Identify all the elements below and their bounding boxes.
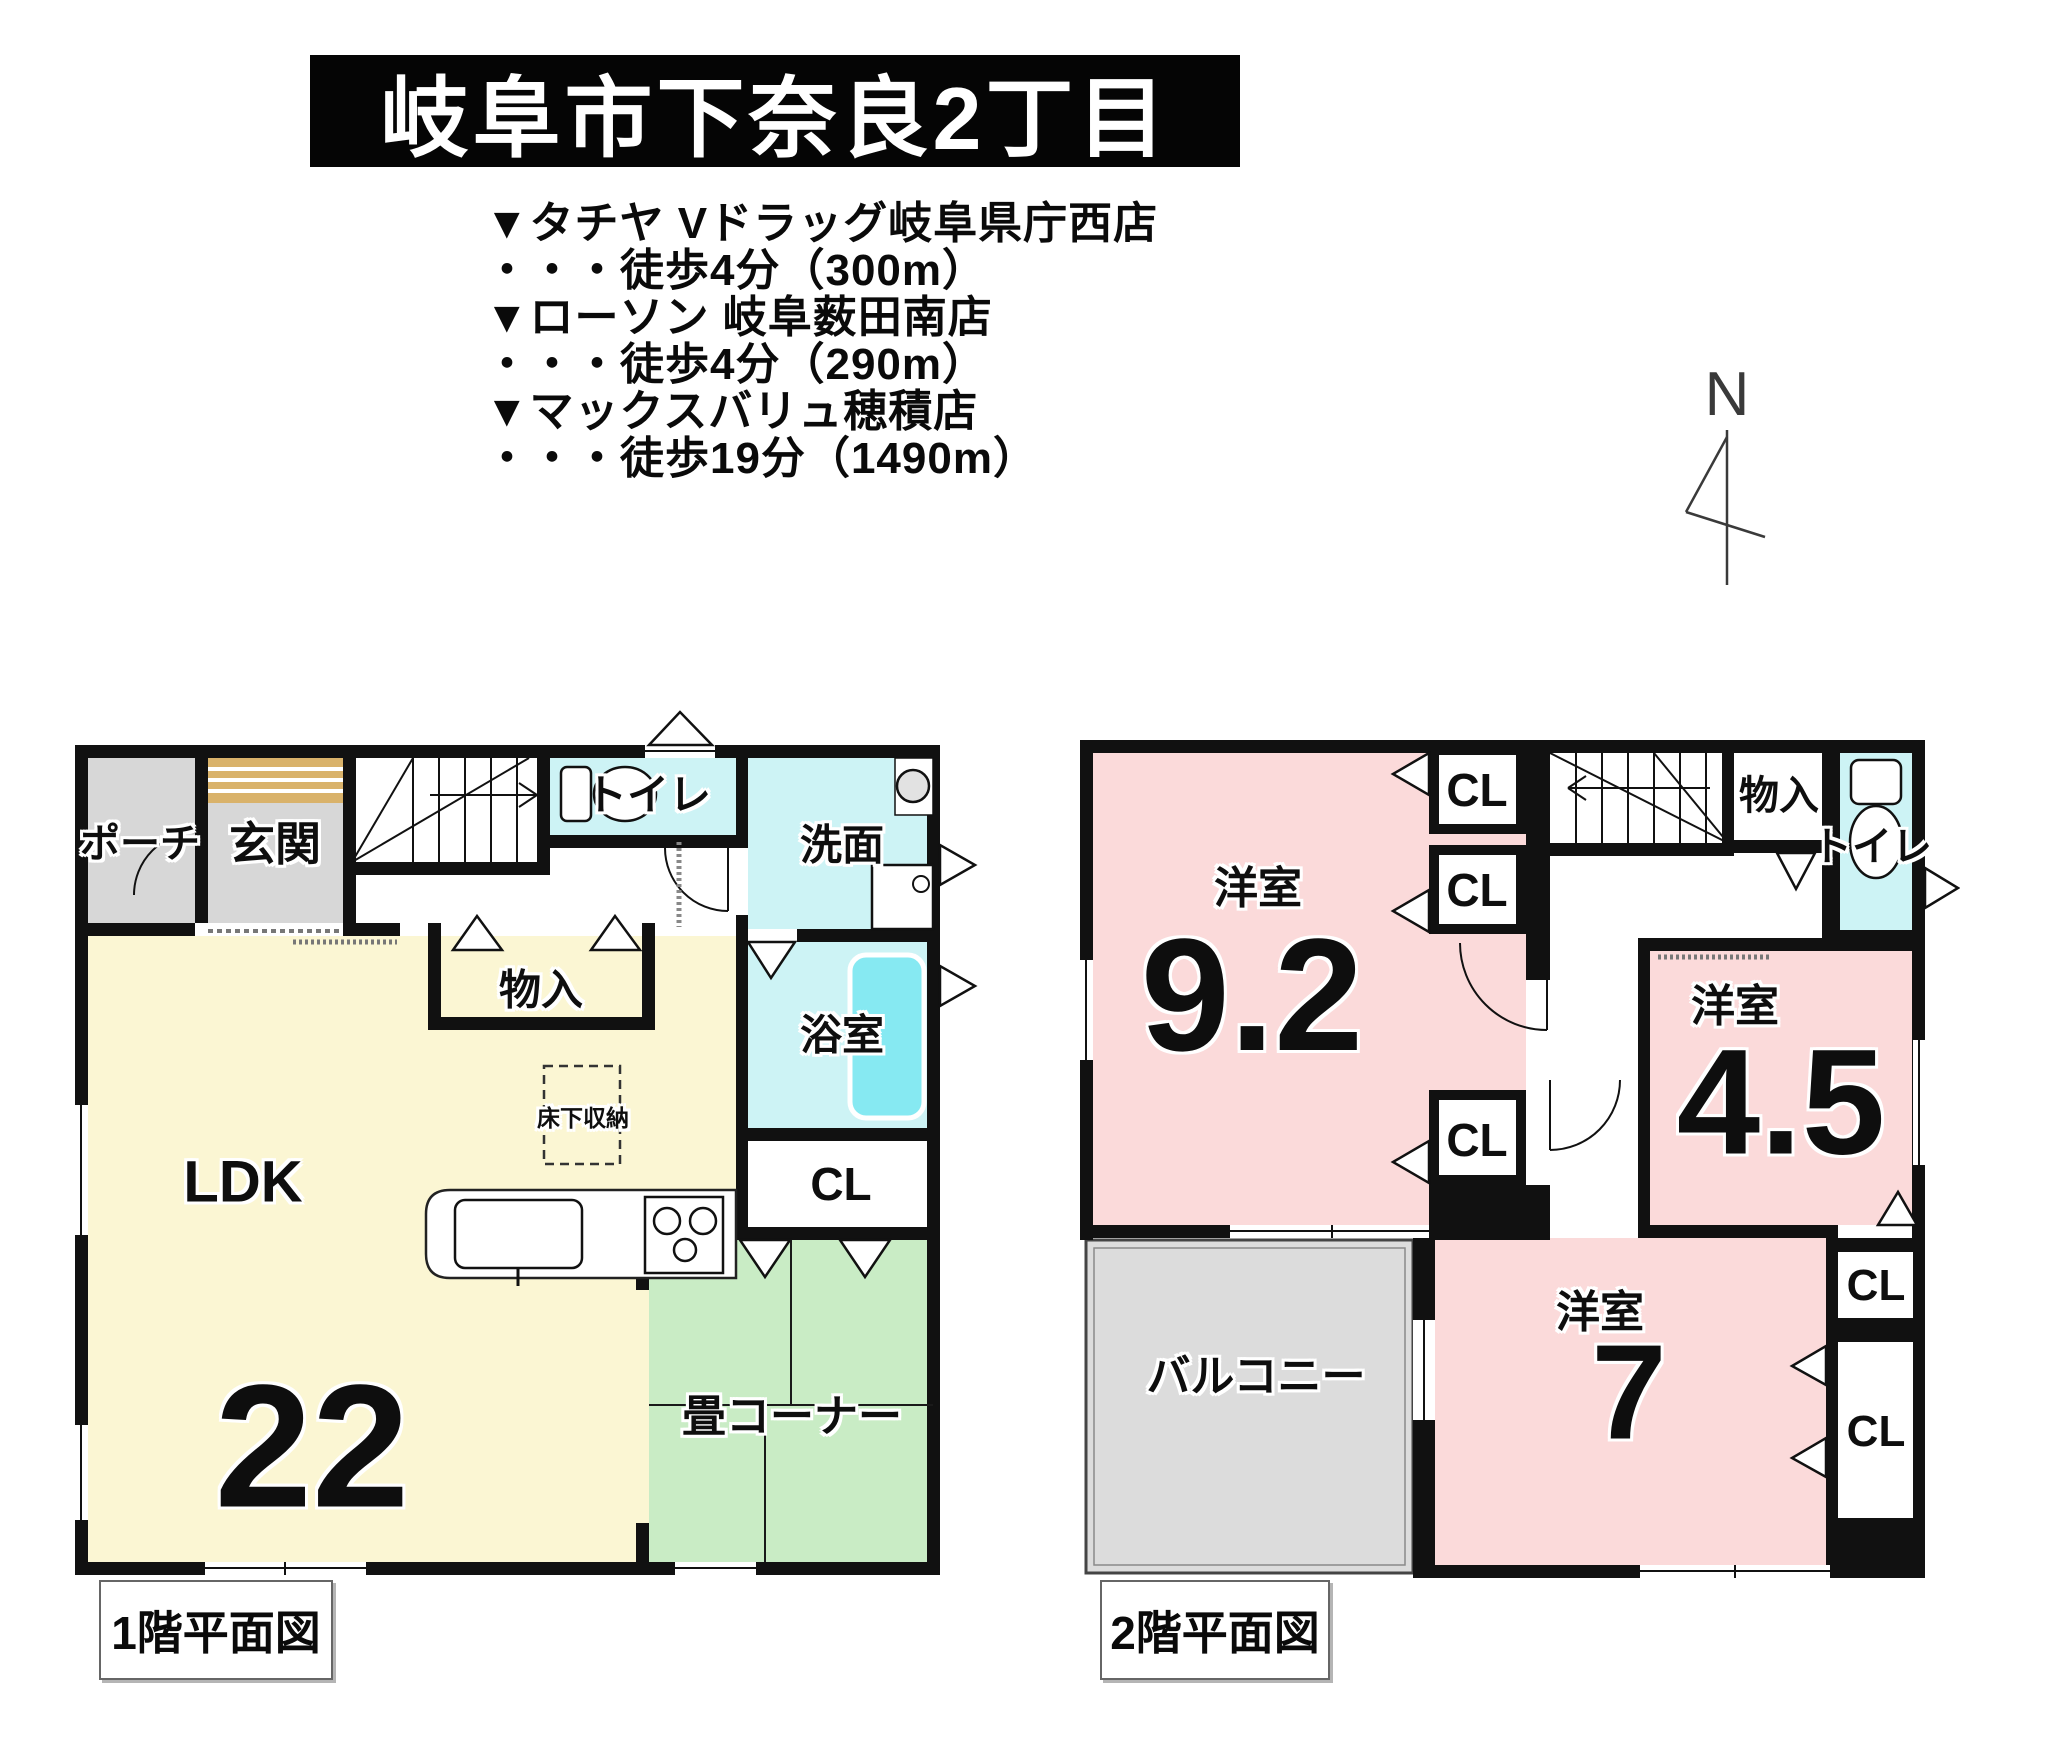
north-label: N [1705, 360, 1750, 429]
nearby-line: ▼ローソン 岐阜薮田南店 [485, 294, 1158, 341]
label-closet-1f: CL [810, 1157, 871, 1211]
label-closet-2f-mid: CL [1446, 1113, 1507, 1167]
label-storage-2f: 物入 [1739, 763, 1819, 821]
floor1-caption: 1階平面図 [111, 1597, 321, 1663]
label-ldk: LDK [183, 1149, 302, 1216]
floor1-caption-box: 1階平面図 [99, 1580, 333, 1680]
nearby-line: ・・・徒歩19分（1490m） [485, 435, 1158, 482]
kitchen-sink-icon [455, 1200, 582, 1268]
label-closet-2f-b: CL [1446, 863, 1507, 917]
nearby-line: ▼タチヤ Vドラッグ岐阜県庁西店 [485, 200, 1158, 247]
label-west-small-size: 7 [1591, 1315, 1666, 1470]
label-underfloor-storage: 床下収納 [537, 1099, 629, 1133]
label-porch: ポーチ [80, 811, 200, 869]
entrance-step [208, 758, 343, 803]
label-closet-2f-d: CL [1847, 1407, 1906, 1457]
label-balcony: バルコニー [1146, 1340, 1365, 1404]
label-west-mid-size: 4.5 [1677, 1016, 1886, 1189]
nearby-line: ・・・徒歩4分（290m） [485, 341, 1158, 388]
label-storage-1f: 物入 [499, 957, 583, 1018]
nearby-facilities: ▼タチヤ Vドラッグ岐阜県庁西店 ・・・徒歩4分（300m） ▼ローソン 岐阜薮… [485, 200, 1158, 482]
label-tatami-corner: 畳コーナー [682, 1380, 902, 1444]
floorplan-flyer: 岐阜市下奈良2丁目 ▼タチヤ Vドラッグ岐阜県庁西店 ・・・徒歩4分（300m）… [0, 0, 2048, 1757]
floor2-caption-box: 2階平面図 [1100, 1580, 1330, 1680]
label-toilet-2f: トイレ [1812, 814, 1932, 872]
room-balcony [1086, 1240, 1413, 1573]
label-washroom: 洗面 [800, 812, 884, 873]
label-west-large-size: 9.2 [1141, 903, 1363, 1087]
floor2-caption: 2階平面図 [1110, 1597, 1320, 1663]
kitchen-counter [426, 1190, 736, 1286]
north-arrow-icon: N [1650, 330, 1810, 600]
page-title: 岐阜市下奈良2丁目 [381, 48, 1170, 175]
label-entrance: 玄関 [229, 808, 321, 874]
title-banner: 岐阜市下奈良2丁目 [310, 55, 1240, 167]
label-bathroom: 浴室 [800, 1002, 884, 1063]
label-closet-2f-a: CL [1446, 763, 1507, 817]
label-toilet-1f: トイレ [585, 762, 711, 823]
label-ldk-size: 22 [215, 1347, 410, 1548]
label-closet-2f-c: CL [1847, 1261, 1906, 1311]
nearby-line: ・・・徒歩4分（300m） [485, 247, 1158, 294]
nearby-line: ▼マックスバリュ穂積店 [485, 388, 1158, 435]
